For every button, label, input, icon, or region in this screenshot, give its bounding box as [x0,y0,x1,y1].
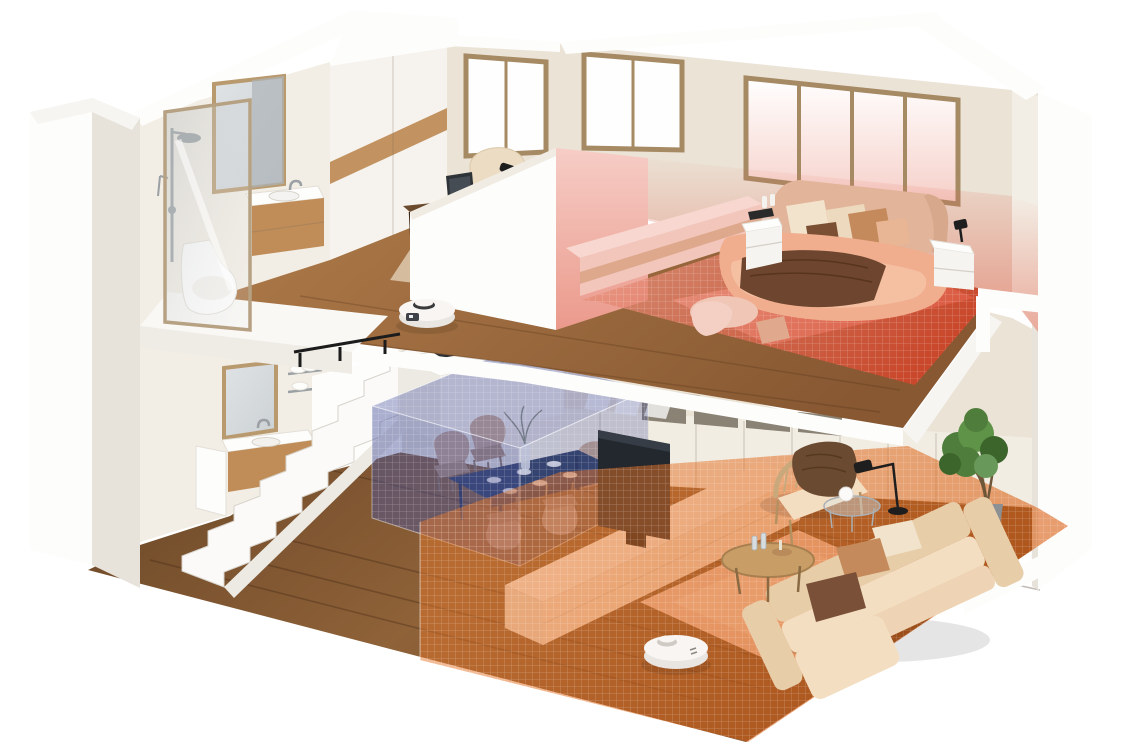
smart-home-cutaway-svg [0,0,1122,750]
office-window [466,56,546,156]
bedroom-window-left [584,54,682,150]
robot-vacuum-upper [396,299,458,334]
left-exterior-wall [30,98,140,588]
guest-bathroom-mirror [224,362,276,438]
bathroom-vanity [246,181,324,256]
robot-vacuum-lower [641,635,711,675]
right-parapet-post [976,296,990,352]
shower-glass-panel [165,100,250,330]
smart-home-cutaway-render [0,0,1122,750]
